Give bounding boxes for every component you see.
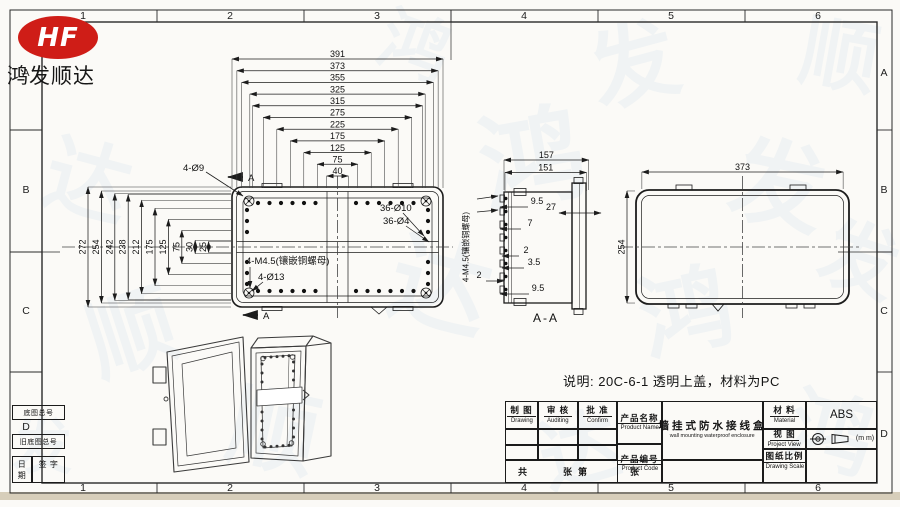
dim-value: 355 (330, 73, 345, 83)
dim-value: 254 (617, 239, 627, 254)
hole (245, 260, 249, 264)
label-outer-holes: 36-Ø10 (380, 203, 412, 214)
knuckle-pin (504, 262, 507, 265)
view-label-cell: 视 图 Project View (763, 429, 806, 449)
label-corner-holes: 4-Ø9 (183, 163, 204, 174)
knuckle-pin (504, 249, 507, 252)
hole (426, 282, 430, 286)
grid-col-3-bottom: 3 (374, 482, 380, 494)
dim-value: 373 (330, 61, 345, 71)
knuckle-pin (504, 197, 507, 200)
isometric-view (153, 336, 331, 472)
grid-row-d-left: D (22, 421, 30, 433)
grid-row-b-left: B (22, 184, 29, 196)
lid-view (620, 176, 862, 318)
empty-cell (662, 460, 763, 483)
dim-2-upper: 2 (523, 245, 528, 255)
hole (388, 201, 392, 205)
grid-col-2-top: 2 (227, 10, 233, 22)
empty-cell (505, 445, 538, 460)
dim-value: 254 (91, 239, 101, 254)
drawing-sheet: { "sheet": { "grid_columns": ["1","2","3… (0, 0, 900, 500)
hole (290, 201, 294, 205)
auditing-en: Auditing (547, 417, 569, 424)
hole (290, 289, 294, 293)
iso-hole (270, 445, 273, 448)
dim-value: 175 (330, 131, 345, 141)
dim-value: 242 (104, 239, 114, 254)
iso-hole (292, 418, 295, 421)
dim-value: 25 (198, 242, 208, 252)
hole (267, 289, 271, 293)
dim-value: 212 (131, 239, 141, 254)
material-value-cell: ABS (806, 401, 877, 429)
sheet-no-label: 第 (578, 466, 587, 476)
section-mark-bottom: A (263, 311, 270, 322)
dim-value: 391 (330, 49, 345, 59)
hole (426, 208, 430, 212)
grid-col-6-top: 6 (815, 10, 821, 22)
dim-3-5: 3.5 (528, 257, 541, 267)
scale-label-zh: 图纸比例 (763, 452, 807, 463)
hole (313, 201, 317, 205)
iso-hole (261, 381, 264, 384)
product-name-label-cell: 产品名称 Product Name (617, 401, 662, 444)
iso-hole (292, 436, 295, 439)
scale-label-en: Drawing Scale (765, 463, 804, 470)
empty-cell (505, 429, 538, 445)
iso-hole (261, 438, 264, 441)
grid-col-5-top: 5 (668, 10, 674, 22)
hole (426, 219, 430, 223)
iso-hole (276, 445, 279, 448)
scale-value-cell (806, 449, 877, 483)
empty-cell (538, 445, 578, 460)
dim-value: 325 (330, 84, 345, 94)
hole (354, 289, 358, 293)
section-caption: A-A (533, 311, 559, 325)
confirm-cell: 批 准 Confirm (578, 401, 617, 429)
grid-col-4-bottom: 4 (521, 482, 527, 494)
note-text: 说明: 20C-6-1 透明上盖，材料为PC (563, 371, 780, 390)
drawing-zh: 制 图 (507, 406, 535, 417)
dim-value: 225 (330, 119, 345, 129)
old-base-drawing-no-cell: 旧底图总号 (12, 434, 65, 449)
hole (426, 230, 430, 234)
hole (400, 289, 404, 293)
knuckle-pin (504, 223, 507, 226)
hole (426, 271, 430, 275)
dim-value: 125 (330, 143, 345, 153)
dim-7: 7 (527, 218, 532, 228)
product-name-zh: 墙挂式防水接线盒 (659, 421, 767, 433)
iso-hole (282, 355, 285, 358)
iso-hole (282, 444, 285, 447)
dim-value: 40 (332, 166, 342, 176)
hole (267, 201, 271, 205)
hole (400, 201, 404, 205)
dim-9-5-top: 9.5 (531, 196, 544, 206)
product-name-value-cell: 墙挂式防水接线盒 wall mounting waterproof enclos… (662, 401, 763, 460)
signature-cell: 签 字 (32, 456, 65, 483)
company-logo: HF (18, 16, 98, 59)
dim-value: 75 (171, 242, 181, 252)
auditing-zh: 审 核 (544, 406, 572, 417)
product-name-label-zh: 产品名称 (618, 414, 662, 425)
grid-row-a-right: A (880, 67, 887, 79)
knuckle-pin (504, 275, 507, 278)
iso-hole (292, 361, 295, 364)
material-label-zh: 材 料 (770, 406, 798, 417)
hole (245, 282, 249, 286)
auditing-cell: 审 核 Auditing (538, 401, 578, 429)
product-name-label-en: Product Name (620, 424, 658, 431)
grid-row-b-right: B (880, 184, 887, 196)
empty-cell (578, 429, 617, 445)
grid-col-1-bottom: 1 (80, 482, 86, 494)
hole (245, 219, 249, 223)
grid-row-c-left: C (22, 305, 30, 317)
label-insert-nut: 4-M4.5(镶嵌铜螺母) (246, 255, 329, 267)
iso-hole (276, 355, 279, 358)
sheet-unit-label-1: 张 (563, 466, 572, 476)
dim-value: 151 (538, 163, 553, 173)
hole (245, 230, 249, 234)
dim-27: 27 (546, 202, 556, 212)
unit-label: (m m) (856, 435, 874, 443)
hole (354, 201, 358, 205)
confirm-en: Confirm (587, 417, 608, 424)
material-label-cell: 材 料 Material (763, 401, 806, 429)
hole (256, 201, 260, 205)
grid-row-d-right: D (880, 428, 888, 440)
dim-value: 175 (145, 239, 155, 254)
hole (377, 201, 381, 205)
hole (426, 260, 430, 264)
date-cell: 日 期 (12, 456, 32, 483)
label-feet-holes: 4-Ø13 (258, 272, 284, 283)
hole (313, 289, 317, 293)
hole (411, 289, 415, 293)
dim-value: 125 (158, 239, 168, 254)
knuckle-pin (504, 288, 507, 291)
iso-hole (261, 372, 264, 375)
hole (365, 289, 369, 293)
confirm-zh: 批 准 (583, 406, 611, 417)
section-mark-top: A (248, 173, 255, 184)
dim-value: 275 (330, 108, 345, 118)
empty-cell (578, 445, 617, 460)
iso-hole (292, 409, 295, 412)
dimension-layer: 3913733553253152752251751257540272254242… (78, 49, 844, 307)
dim-9-5-bottom: 9.5 (532, 283, 545, 293)
hole (302, 201, 306, 205)
drawing-en: Drawing (511, 417, 533, 424)
hole (279, 201, 283, 205)
iso-hole (270, 356, 273, 359)
iso-hole (261, 429, 264, 432)
hole (377, 289, 381, 293)
material-label-en: Material (774, 417, 795, 424)
grid-row-c-right: C (880, 305, 888, 317)
grid-col-2-bottom: 2 (227, 482, 233, 494)
hole (365, 201, 369, 205)
section-annotations: 9.5 7 27 2 3.5 2 9.5 4-M4.5(镶嵌铜螺母) A-A (461, 196, 560, 325)
title-block: 制 图 Drawing 审 核 Auditing 批 准 Confirm 产品名… (505, 401, 877, 483)
dim-value: 373 (735, 162, 750, 172)
logo-monogram: HF (37, 23, 79, 53)
label-inner-holes: 36-Ø4 (383, 216, 409, 227)
company-name: 鸿发顺达 (7, 60, 95, 90)
dim-2-lower: 2 (476, 270, 481, 280)
knuckle-pin (504, 236, 507, 239)
dim-value: 272 (78, 239, 88, 254)
projection-symbol-cell: (m m) (806, 429, 877, 449)
iso-hole (261, 420, 264, 423)
iso-corner-boss (289, 441, 294, 446)
projection-view-icon (809, 431, 853, 447)
knuckle-pin (504, 210, 507, 213)
date-char-top: 日 (18, 459, 27, 470)
section-side-label: 4-M4.5(镶嵌铜螺母) (461, 212, 471, 283)
date-char-bottom: 期 (18, 470, 27, 481)
dim-value: 75 (332, 155, 342, 165)
dim-value: 157 (539, 150, 554, 160)
empty-cell (538, 429, 578, 445)
hole (411, 201, 415, 205)
grid-col-4-top: 4 (521, 10, 527, 22)
iso-hole (292, 370, 295, 373)
hole (256, 289, 260, 293)
base-drawing-no-cell: 底图总号 (12, 405, 65, 420)
view-label-zh: 视 图 (770, 430, 798, 441)
product-name-en: wall mounting waterproof enclosure (670, 433, 755, 439)
grid-col-3-top: 3 (374, 10, 380, 22)
dim-value: 30 (185, 242, 195, 252)
hole (302, 289, 306, 293)
sheet-unit-label-2: 张 (630, 466, 639, 476)
grid-col-6-bottom: 6 (815, 482, 821, 494)
grid-col-5-bottom: 5 (668, 482, 674, 494)
drawing-cell: 制 图 Drawing (505, 401, 538, 429)
hole (279, 289, 283, 293)
sheet-count-cell: 共 张 第 张 (505, 460, 662, 483)
iso-hole (292, 427, 295, 430)
scale-label-cell: 图纸比例 Drawing Scale (763, 449, 806, 483)
hole (245, 271, 249, 275)
view-label-en: Project View (768, 441, 801, 448)
hole (245, 208, 249, 212)
sheet-total-label: 共 (518, 466, 527, 476)
hole (388, 289, 392, 293)
iso-hole (261, 363, 264, 366)
iso-hole (261, 411, 264, 414)
dim-value: 238 (118, 239, 128, 254)
iso-hole (292, 379, 295, 382)
dim-value: 315 (330, 96, 345, 106)
